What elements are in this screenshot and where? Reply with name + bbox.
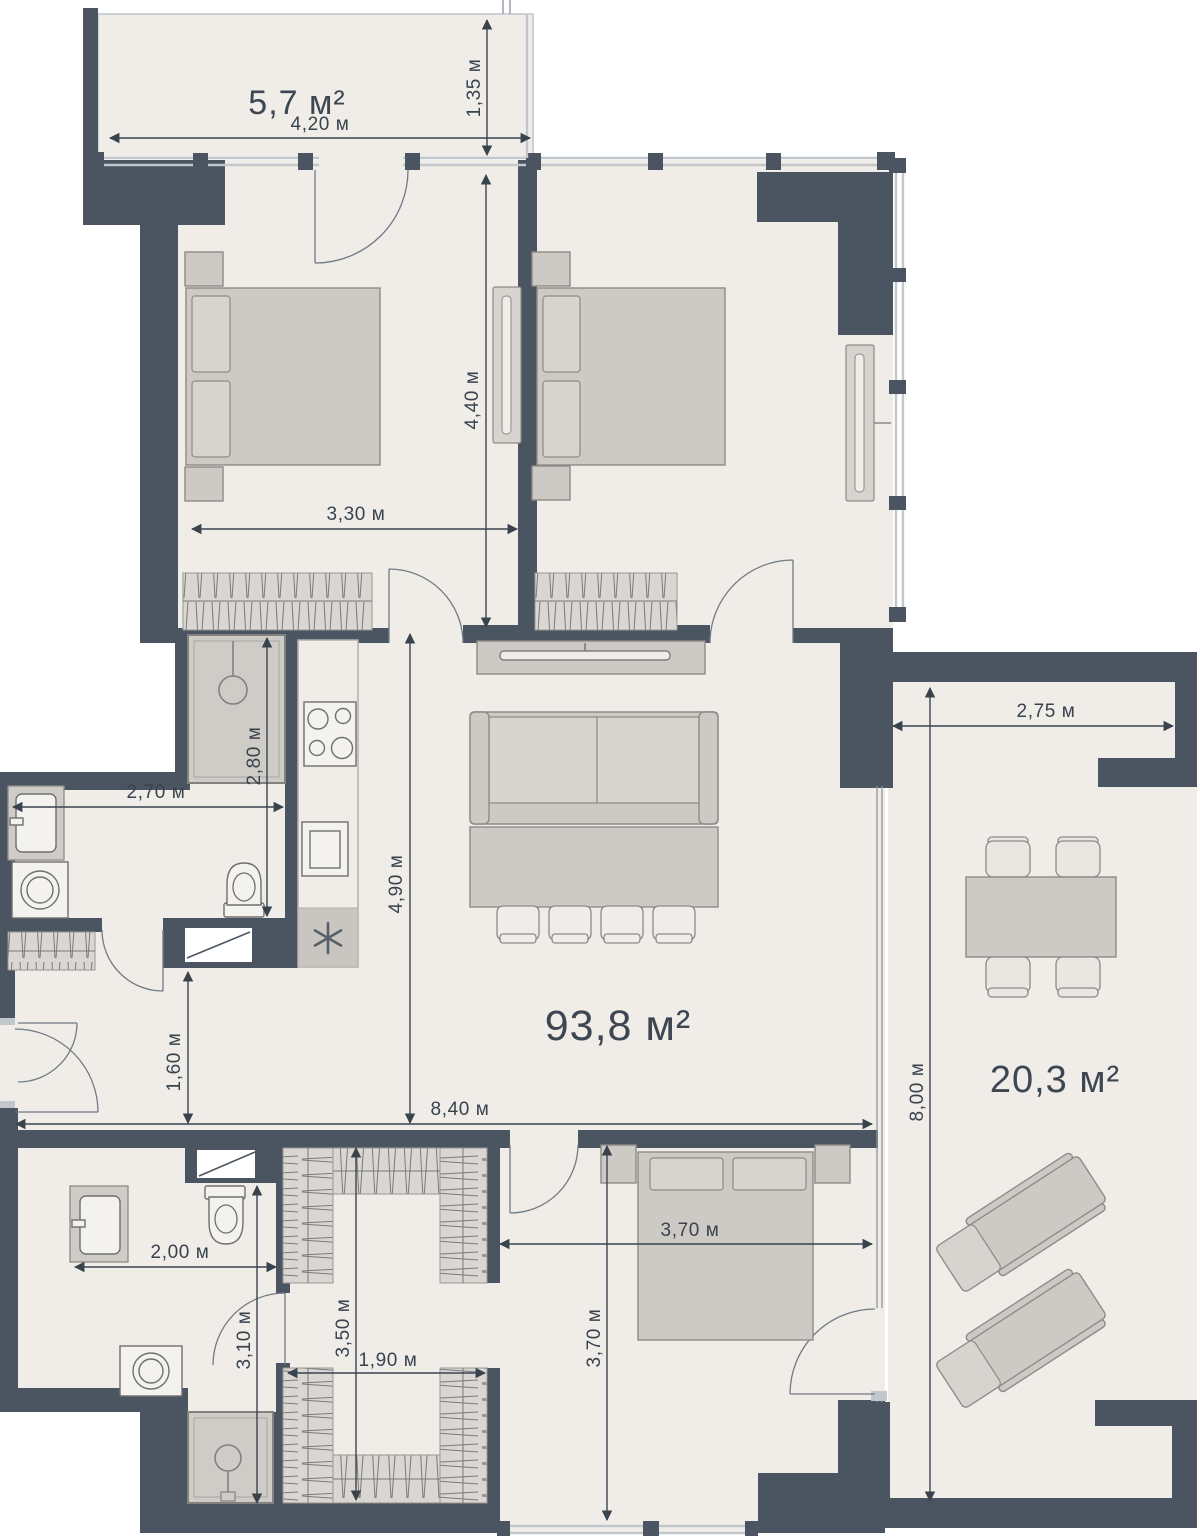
sink-icon: [70, 1186, 128, 1262]
stove-icon: [304, 702, 356, 766]
dim-label-370w: 3,70 м: [661, 1220, 720, 1241]
radiator-icon: [493, 287, 521, 443]
dining-table: [470, 827, 718, 907]
sofa: [470, 712, 718, 824]
dim-label-135: 1,35 м: [464, 59, 485, 118]
area-label-living: 93,8 м²: [545, 1002, 692, 1050]
dim-label-370h: 3,70 м: [584, 1309, 605, 1368]
bed-double-2: [532, 252, 725, 500]
exterior-notch: [0, 1412, 140, 1540]
wardrobe-bedroom1: [183, 573, 372, 630]
duct-niche-upper: [185, 928, 252, 962]
dim-label-350: 3,50 м: [333, 1299, 354, 1358]
bed-double-1: [185, 252, 380, 501]
bed-double-3: [601, 1145, 850, 1340]
dim-label-840: 8,40 м: [431, 1099, 490, 1120]
duct-niche-lower: [197, 1150, 255, 1178]
toilet-icon: [205, 1186, 245, 1244]
dim-label-440: 4,40 м: [462, 371, 483, 430]
shower-icon: [188, 635, 285, 783]
washer-icon: [12, 862, 68, 918]
washer-icon: [120, 1346, 182, 1396]
floor-plan-page: 4,20 м 1,35 м 4,40 м 3,30 м 2,80 м 2,70 …: [0, 0, 1200, 1540]
dim-label-275: 2,75 м: [1017, 701, 1076, 722]
dim-label-490: 4,90 м: [386, 855, 407, 914]
dim-label-310: 3,10 м: [234, 1311, 255, 1370]
wardrobe-bedroom2: [535, 573, 677, 630]
area-label-balcony: 5,7 м²: [248, 84, 345, 122]
dim-label-190: 1,90 м: [359, 1350, 418, 1371]
entry-jamb-top: [0, 1018, 15, 1025]
hall-closet: [8, 932, 95, 970]
balcony-door-opening: [319, 150, 403, 172]
area-label-terrace: 20,3 м²: [990, 1059, 1120, 1101]
balcony-divider-stub: [503, 0, 510, 14]
tv-stand: [477, 641, 705, 674]
dim-label-330: 3,30 м: [327, 504, 386, 525]
dim-label-160: 1,60 м: [164, 1033, 185, 1092]
terrace-door-jamb: [871, 1391, 887, 1401]
dim-label-200: 2,00 м: [151, 1242, 210, 1263]
entry-jamb-bottom: [0, 1101, 15, 1108]
sink-icon: [8, 786, 64, 860]
shower-icon: [188, 1412, 273, 1503]
floor-plan: 4,20 м 1,35 м 4,40 м 3,30 м 2,80 м 2,70 …: [0, 0, 1200, 1540]
dim-label-280: 2,80 м: [244, 727, 265, 786]
toilet-icon: [224, 863, 264, 917]
tv-icon: [500, 651, 670, 660]
dim-label-270: 2,70 м: [127, 782, 186, 803]
kitchen-counter: [298, 640, 358, 967]
kitchen-sink-icon: [302, 822, 348, 876]
dim-label-800: 8,00 м: [907, 1063, 928, 1122]
